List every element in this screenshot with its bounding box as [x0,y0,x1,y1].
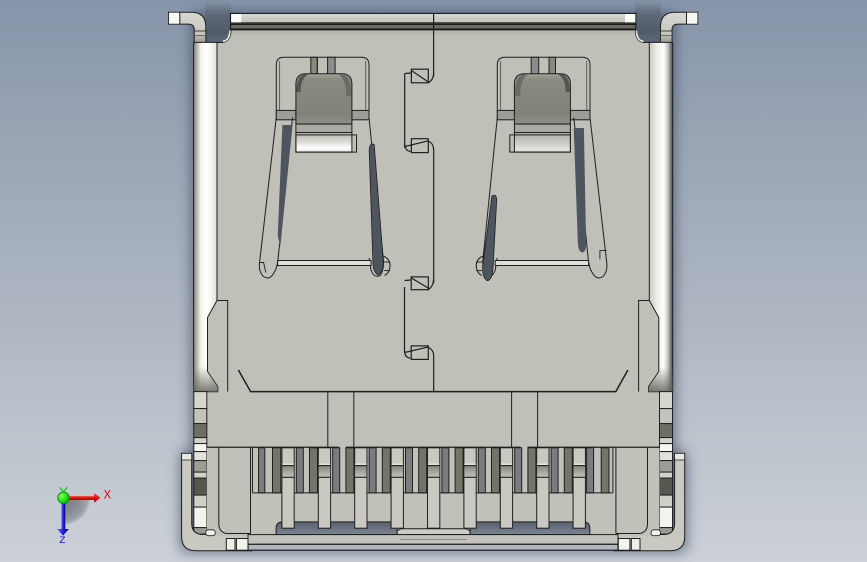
svg-text:Z: Z [59,535,65,547]
svg-text:X: X [104,488,112,502]
